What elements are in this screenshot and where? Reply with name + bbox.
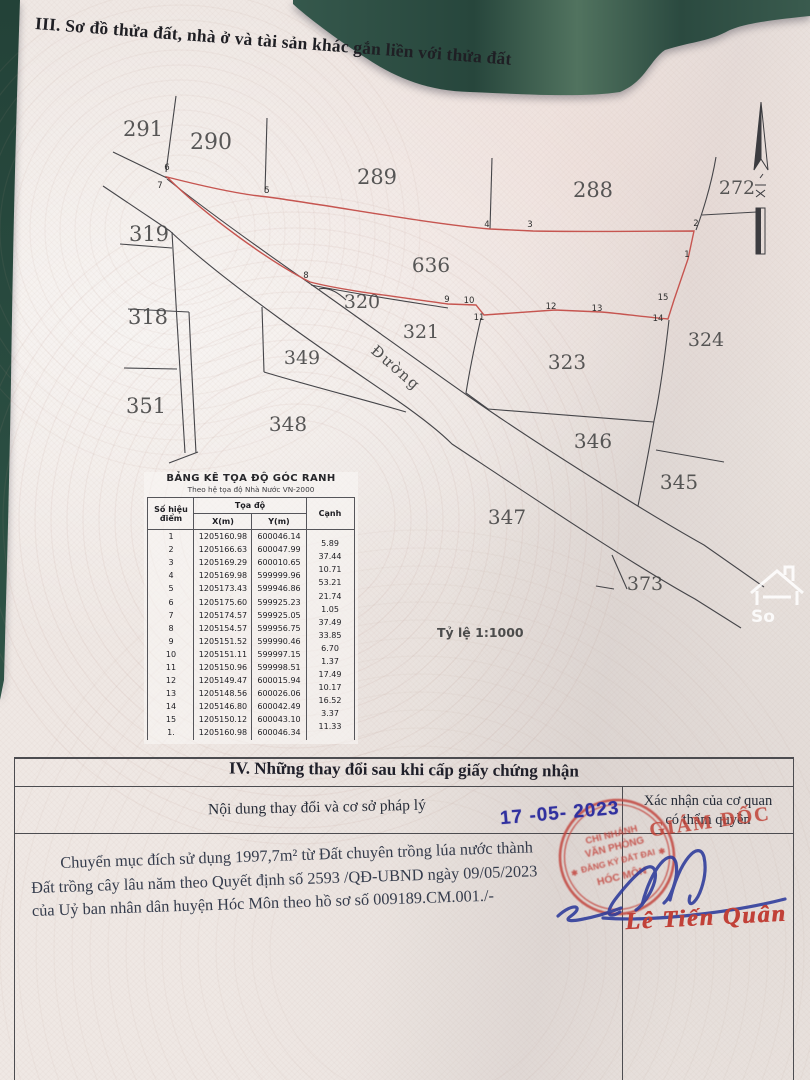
- north-arrow-icon: [754, 102, 768, 254]
- col-header-coords: Tọa độ: [194, 498, 306, 514]
- boundary-vertex-label: 3: [527, 220, 532, 230]
- parcel-number-label: 347: [488, 505, 526, 529]
- col-header-y: Y(m): [252, 514, 306, 530]
- coord-table-body: 11205160.98600046.1421205166.63600047.99…: [148, 530, 354, 740]
- boundary-vertex-label: 2: [693, 219, 698, 229]
- parcel-number-label: 272: [719, 177, 755, 199]
- col-header-x: X(m): [194, 514, 252, 530]
- coordinate-table-subtitle: Theo hệ tọa độ Nhà Nước VN-2000: [145, 485, 357, 494]
- coordinate-table: Số hiệu điểm Tọa độ Cạnh X(m) Y(m) 11205…: [147, 497, 354, 740]
- coord-row: 1.1205160.98600046.3411.33: [148, 726, 354, 739]
- parcel-number-label: 319: [129, 222, 169, 246]
- parcel-number-label: 320: [344, 291, 380, 313]
- boundary-vertex-label: 5: [264, 186, 269, 196]
- col-header-edge: Cạnh: [306, 498, 354, 530]
- boundary-vertex-label: 11: [474, 313, 485, 323]
- map-scale-label: Tỷ lệ 1:1000: [437, 625, 524, 640]
- boundary-vertex-label: 15: [658, 293, 669, 303]
- parcel-number-label: 321: [403, 321, 439, 343]
- parcel-number-label: 324: [688, 329, 724, 351]
- boundary-vertex-label: 14: [653, 314, 664, 324]
- coordinate-table-title: BẢNG KÊ TỌA ĐỘ GÓC RANH: [145, 473, 357, 484]
- parcel-number-label: 318: [128, 305, 168, 329]
- boundary-vertex-label: 6: [164, 163, 169, 173]
- watermark-text: So: [751, 607, 775, 627]
- parcel-number-label: 290: [190, 130, 232, 155]
- boundary-vertex-label: 13: [592, 304, 603, 314]
- boundary-vertex-label: 9: [444, 295, 449, 305]
- parcel-number-label: 289: [357, 165, 397, 189]
- boundary-vertex-label: 12: [546, 302, 557, 312]
- col-header-point: Số hiệu điểm: [148, 498, 194, 530]
- boundary-vertex-label: 10: [464, 296, 475, 306]
- parcel-number-label: 323: [548, 350, 586, 374]
- parcel-number-label: 636: [412, 253, 450, 277]
- boundary-vertex-label: 1: [684, 250, 689, 260]
- parcel-number-label: 351: [126, 394, 166, 418]
- parcel-number-label: 288: [573, 178, 613, 202]
- section4-header-border: [14, 786, 794, 787]
- boundary-vertex-label: 8: [303, 271, 308, 281]
- boundary-vertex-label: 4: [484, 220, 489, 230]
- parcel-number-label: 291: [123, 117, 163, 141]
- parcel-number-label: 373: [627, 573, 663, 595]
- parcel-number-label: 349: [284, 347, 320, 369]
- coordinate-table-block: BẢNG KÊ TỌA ĐỘ GÓC RANH Theo hệ tọa độ N…: [144, 472, 358, 744]
- parcel-number-label: 345: [660, 470, 698, 494]
- watermark-logo: So: [747, 563, 810, 637]
- boundary-vertex-label: 7: [157, 181, 162, 191]
- parcel-number-label: 348: [269, 412, 307, 436]
- house-icon: [747, 563, 810, 607]
- parcel-number-label: 346: [574, 429, 612, 453]
